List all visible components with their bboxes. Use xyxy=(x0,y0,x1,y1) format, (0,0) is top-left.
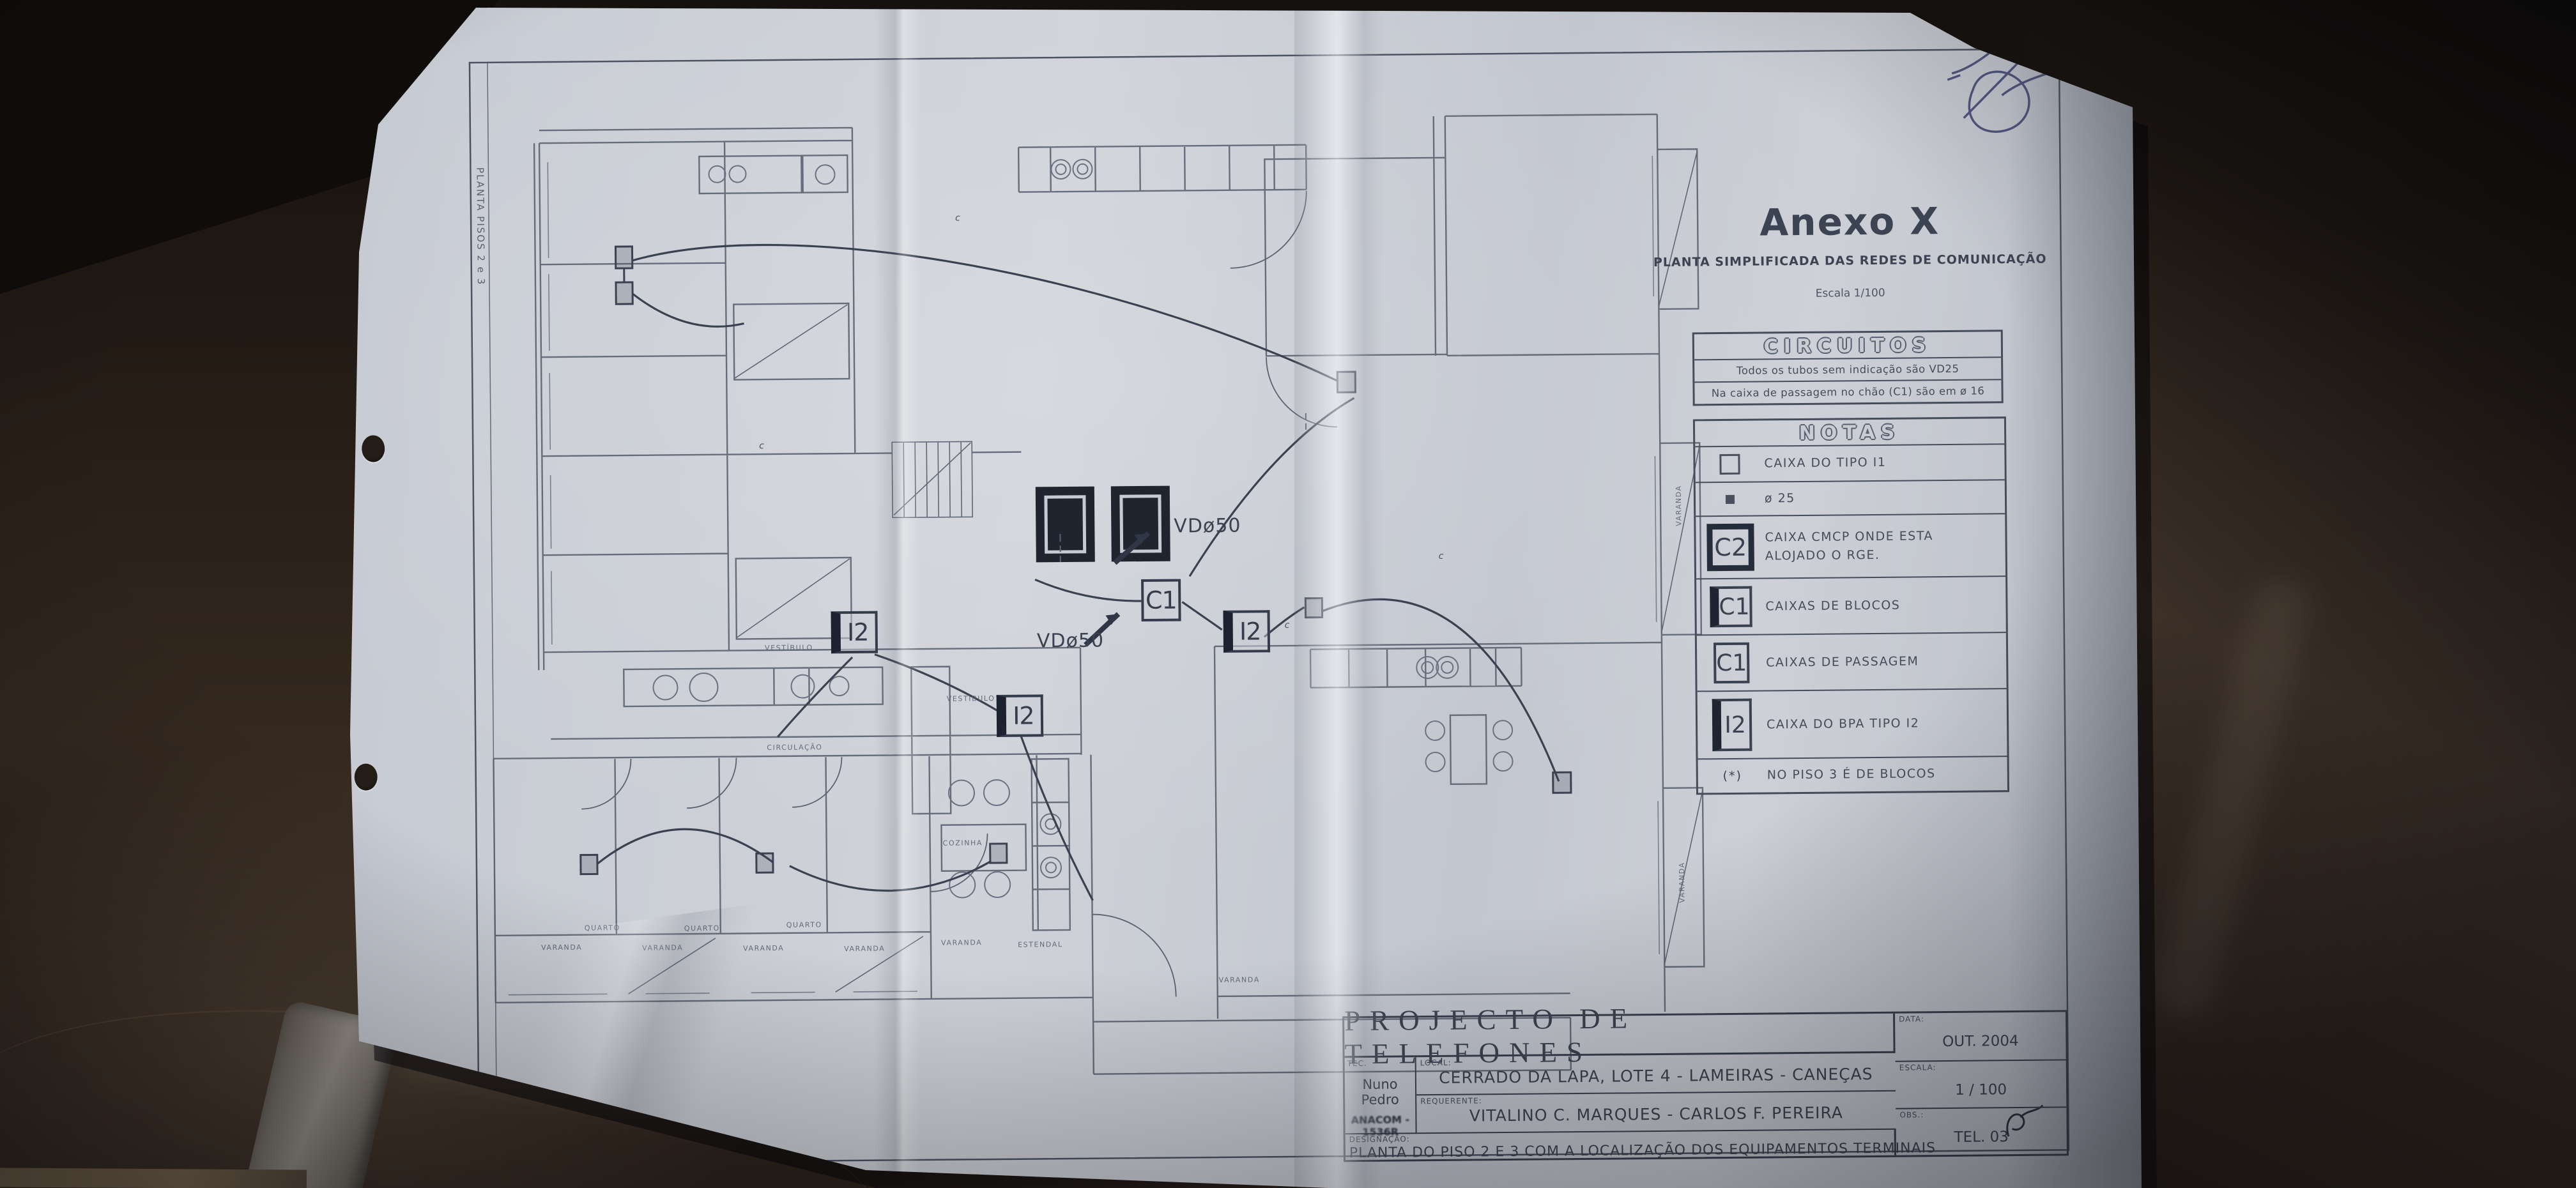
legend-row: ø 25 xyxy=(1696,479,2005,516)
legend-label: ø 25 xyxy=(1765,489,1795,508)
circuit-wires xyxy=(592,238,1560,905)
requerente-value: VITALINO C. MARQUES - CARLOS F. PEREIRA xyxy=(1420,1103,1892,1125)
circuit-letter: c xyxy=(955,213,960,223)
room-label: QUARTO xyxy=(684,924,720,933)
data-cell: DATA: OUT. 2004 xyxy=(1895,1012,2066,1062)
legend-label: CAIXAS DE PASSAGEM xyxy=(1766,652,1919,673)
circuit-letter: c xyxy=(759,441,764,451)
legend-label: CAIXA CMCP ONDE ESTA ALOJADO O RGE. xyxy=(1765,526,1998,566)
circuitos-box: CIRCUITOS Todos os tubos sem indicação s… xyxy=(1692,330,2004,406)
legend-row: C1 CAIXAS DE PASSAGEM xyxy=(1697,632,2007,691)
legend-label: CAIXAS DE BLOCOS xyxy=(1765,596,1900,616)
junction-box-marker: I2 xyxy=(1223,610,1270,653)
circuitos-title: CIRCUITOS xyxy=(1694,331,2001,360)
side-label: PLANTA PISOS 2 e 3 xyxy=(474,167,487,286)
room-label: VARANDA xyxy=(541,943,582,952)
local-cell: LOCAL: CERRADO DA LAPA, LOTE 4 - LAMEIRA… xyxy=(1416,1053,1896,1096)
obs-label: OBS.: xyxy=(1899,1109,2062,1119)
anexo-header: Anexo X PLANTA SIMPLIFICADA DAS REDES DE… xyxy=(1639,198,2061,301)
room-label: QUARTO xyxy=(786,920,822,929)
requerente-cell: REQUERENTE: VITALINO C. MARQUES - CARLOS… xyxy=(1416,1092,1896,1134)
room-label: VARANDA xyxy=(1675,485,1683,526)
hole-punch-icon xyxy=(362,435,385,462)
obs-cell: OBS.: TEL. 03 xyxy=(1896,1108,2067,1155)
room-label: VESTÍBULO xyxy=(947,694,995,703)
junction-box-marker: C1 xyxy=(1141,579,1181,621)
circuitos-line: Todos os tubos sem indicação são VD25 xyxy=(1694,358,2001,381)
junction-box-marker: I2 xyxy=(997,694,1044,737)
photo-of-blueprint: I2C1I2I2 VDø50VDø50 VESTÍBULOVESTÍBULOCI… xyxy=(0,0,2576,1188)
legend-row: C2 CAIXA CMCP ONDE ESTA ALOJADO O RGE. xyxy=(1696,514,2005,579)
legend-symbol xyxy=(1696,494,1765,504)
project-title: PROJECTO DE TELEFONES xyxy=(1344,1014,1896,1058)
legend-row: I2 CAIXA DO BPA TIPO I2 xyxy=(1698,689,2007,759)
circuitos-line: Na caixa de passagem no chão (C1) são em… xyxy=(1694,379,2001,404)
legend-symbol xyxy=(1695,453,1764,475)
room-label: VARANDA xyxy=(1678,862,1687,902)
room-label: VARANDA xyxy=(743,944,784,953)
room-label: VARANDA xyxy=(1218,975,1259,984)
anexo-title: Anexo X xyxy=(1639,198,2061,245)
legend-symbol: C1 xyxy=(1697,643,1767,684)
legend-symbol: C2 xyxy=(1696,524,1765,572)
legend-row: C1 CAIXAS DE BLOCOS xyxy=(1696,576,2006,635)
room-label: ESTENDAL xyxy=(1018,940,1063,949)
duct-callout: VDø50 xyxy=(1174,515,1241,538)
notas-box: NOTAS CAIXA DO TIPO I1 ø 25 C2 CAIXA CMC… xyxy=(1693,416,2009,795)
room-label: QUARTO xyxy=(585,924,620,932)
notas-title: NOTAS xyxy=(1695,418,2004,447)
notas-rows: CAIXA DO TIPO I1 ø 25 C2 CAIXA CMCP ONDE… xyxy=(1695,445,2007,793)
legend-label: CAIXA DO BPA TIPO I2 xyxy=(1767,714,1919,735)
escala-cell: ESCALA: 1 / 100 xyxy=(1896,1060,2067,1109)
tec-name: Nuno Pedro xyxy=(1347,1076,1413,1108)
seat-edge xyxy=(0,1168,307,1188)
data-value: OUT. 2004 xyxy=(1899,1032,2062,1050)
escala-label: ESCALA: xyxy=(1899,1062,2062,1072)
door-arcs xyxy=(576,190,1342,1001)
room-label: COZINHA xyxy=(943,839,983,848)
tec-label: TEC. xyxy=(1347,1058,1413,1068)
escala-value: 1 / 100 xyxy=(1899,1081,2062,1099)
room-label: VESTÍBULO xyxy=(765,643,813,652)
title-block: PROJECTO DE TELEFONES TEC. Nuno Pedro AN… xyxy=(1342,1010,2069,1162)
small-annotations xyxy=(1059,413,1307,562)
elevator-shafts xyxy=(1036,486,1170,563)
legend-label: CAIXA DO TIPO I1 xyxy=(1764,453,1886,473)
hatching xyxy=(621,151,1704,994)
circuit-letter: c xyxy=(1285,620,1290,630)
room-label: VARANDA xyxy=(642,943,683,952)
room-label: VARANDA xyxy=(941,938,982,947)
data-label: DATA: xyxy=(1899,1013,2062,1023)
technician-cell: TEC. Nuno Pedro ANACOM - 1536R xyxy=(1345,1057,1417,1134)
room-label: VARANDA xyxy=(844,945,885,954)
legend-symbol: I2 xyxy=(1698,699,1767,752)
duct-callout: VDø50 xyxy=(1037,630,1104,653)
legend-symbol: C1 xyxy=(1696,586,1766,628)
junction-box-marker: I2 xyxy=(831,611,878,654)
obs-value: TEL. 03 xyxy=(1900,1128,2063,1146)
circuit-letter: c xyxy=(1439,551,1444,561)
legend-label: NO PISO 3 É DE BLOCOS xyxy=(1767,765,1936,786)
legend-symbol: (*) xyxy=(1698,769,1767,784)
legend-row: CAIXA DO TIPO I1 xyxy=(1695,445,2004,482)
legend-row: (*) NO PISO 3 É DE BLOCOS xyxy=(1698,756,2007,793)
anexo-subtitle: PLANTA SIMPLIFICADA DAS REDES DE COMUNIC… xyxy=(1639,252,2061,270)
room-label: CIRCULAÇÃO xyxy=(767,743,822,752)
designacao-cell: DESIGNAÇÃO: PLANTA DO PISO 2 E 3 COM A L… xyxy=(1345,1130,1896,1161)
window-lines xyxy=(501,153,1659,995)
hole-punch-icon xyxy=(355,763,378,790)
local-value: CERRADO DA LAPA, LOTE 4 - LAMEIRAS - CAN… xyxy=(1420,1065,1892,1087)
